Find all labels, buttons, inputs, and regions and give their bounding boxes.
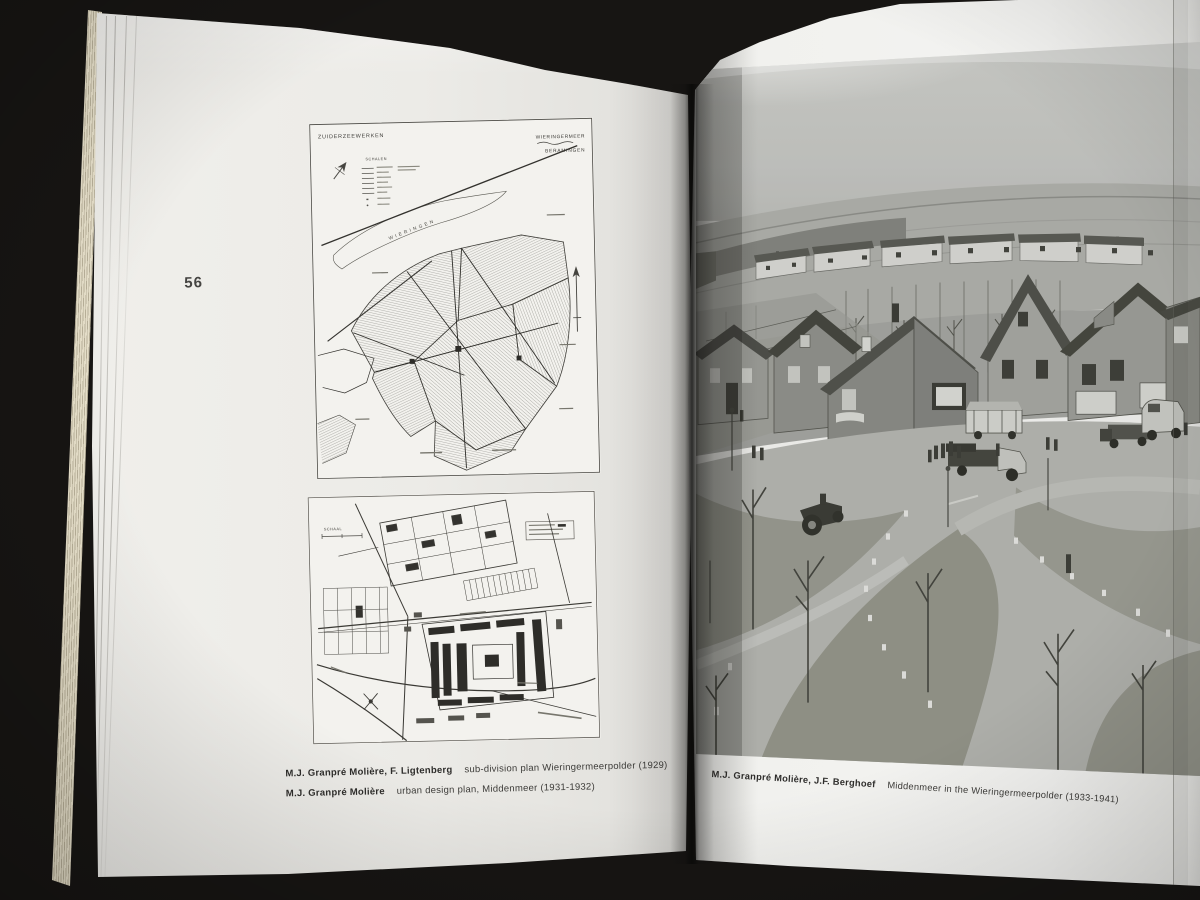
caption-authors: M.J. Granpré Molière, F. Ligtenberg xyxy=(285,765,452,780)
caption-authors: M.J. Granpré Molière, J.F. Berghoef xyxy=(711,769,876,789)
photo-middenmeer-aerial-view xyxy=(696,38,1200,780)
left-page-content: 56 ZUIDERZEEWERKEN WIERINGERMEER xyxy=(78,0,702,891)
page-number: 56 xyxy=(184,274,203,291)
right-page-fore-edge xyxy=(1173,0,1188,900)
map-region-label-1: WIERINGERMEER xyxy=(536,133,585,140)
caption-subdivision-plan: M.J. Granpré Molière, F. Ligtenberg sub-… xyxy=(285,759,695,781)
left-page-captions: M.J. Granpré Molière, F. Ligtenberg sub-… xyxy=(285,759,696,809)
map-urban-design-plan-middenmeer: SCHAAL xyxy=(307,490,601,744)
left-page: 56 ZUIDERZEEWERKEN WIERINGERMEER xyxy=(88,6,692,884)
caption-urban-design-plan: M.J. Granpré Molière urban design plan, … xyxy=(286,779,696,801)
caption-middenmeer-photo: M.J. Granpré Molière, J.F. Berghoef Midd… xyxy=(711,768,1151,808)
caption-title: urban design plan, Middenmeer (1931-1932… xyxy=(397,782,595,797)
book-spread-photo: 56 ZUIDERZEEWERKEN WIERINGERMEER xyxy=(0,0,1200,900)
map-subdivision-plan-wieringermeerpolder: ZUIDERZEEWERKEN WIERINGERMEER BERAMINGEN… xyxy=(309,117,601,479)
map2-legend-title: SCHAAL xyxy=(324,527,342,531)
caption-authors: M.J. Granpré Molière xyxy=(286,787,385,800)
photo-shading xyxy=(696,38,1200,780)
caption-title: Middenmeer in the Wieringermeerpolder (1… xyxy=(887,780,1119,805)
right-page: M.J. Granpré Molière, J.F. Berghoef Midd… xyxy=(688,0,1200,900)
map-legend-title: SCHALEN xyxy=(365,157,387,161)
caption-title: sub-division plan Wieringermeerpolder (1… xyxy=(464,760,667,776)
